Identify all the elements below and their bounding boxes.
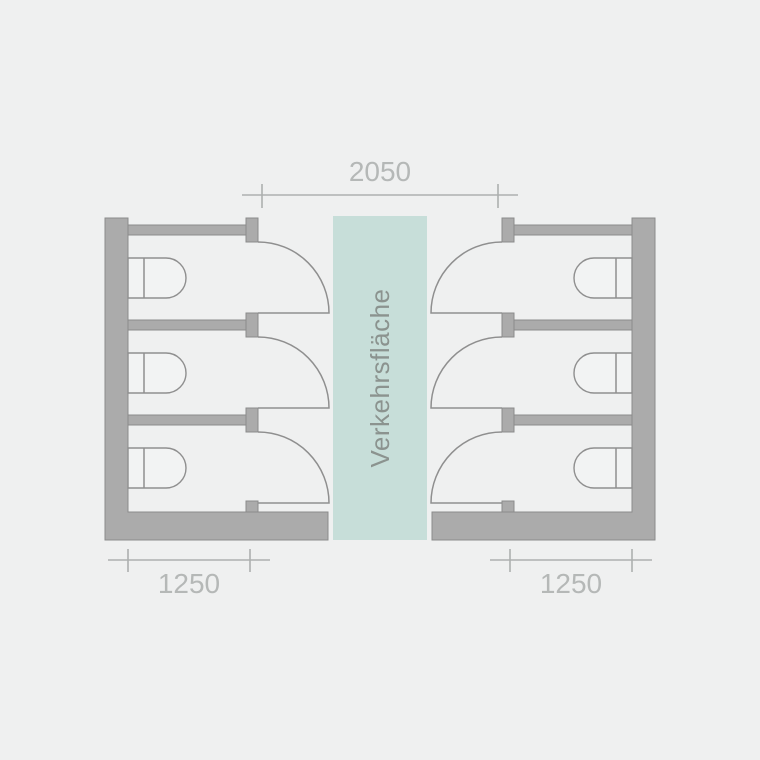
door-swing (431, 242, 502, 313)
dimension-corridor-width: 2050 (242, 156, 518, 208)
dimension-label: 1250 (540, 568, 602, 599)
dimension-label: 2050 (349, 156, 411, 187)
partition-wall (128, 320, 246, 330)
partition-wall (514, 225, 632, 235)
door-swing (258, 337, 329, 408)
toilet (128, 353, 186, 393)
partition-wall (128, 415, 246, 425)
door-post (502, 313, 514, 337)
door-swing (431, 337, 502, 408)
toilet (128, 258, 186, 298)
door-swing (258, 242, 329, 313)
corridor-label: Verkehrsfläche (365, 289, 395, 468)
door-post (502, 501, 514, 512)
door-post (246, 313, 258, 337)
dimension-right-stall-depth: 1250 (490, 549, 652, 599)
door-post (246, 408, 258, 432)
floor-plan-canvas: Verkehrsfläche 2050 1250 1250 (0, 0, 760, 760)
left-stall-block (105, 218, 329, 540)
door-post (246, 218, 258, 242)
toilet-floor-plan: Verkehrsfläche 2050 1250 1250 (0, 0, 760, 760)
door-swing (431, 432, 502, 503)
door-swing (258, 432, 329, 503)
partition-wall (514, 415, 632, 425)
dimension-left-stall-depth: 1250 (108, 549, 270, 599)
toilet (574, 448, 632, 488)
partition-wall (128, 225, 246, 235)
toilet (574, 353, 632, 393)
door-post (246, 501, 258, 512)
toilet (128, 448, 186, 488)
partition-wall (514, 320, 632, 330)
right-stall-block (431, 218, 655, 540)
door-post (502, 408, 514, 432)
toilet (574, 258, 632, 298)
dimension-label: 1250 (158, 568, 220, 599)
door-post (502, 218, 514, 242)
